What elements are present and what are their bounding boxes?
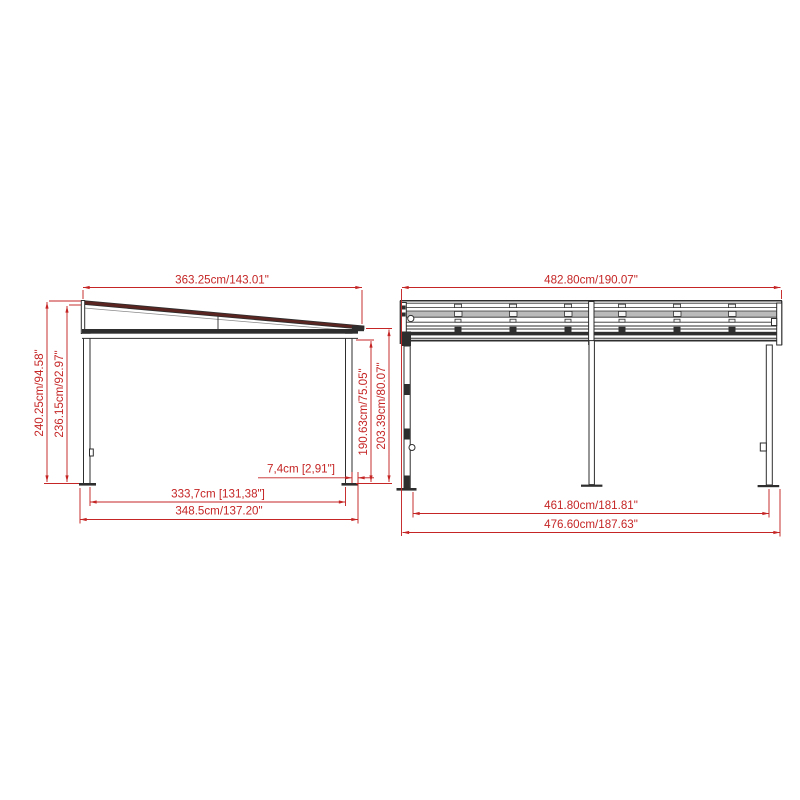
carport-technical-drawing: 363.25cm/143.01" 240.25cm/94.58" 236.15c… — [0, 0, 800, 800]
dim-label-depth-overall: 348.5cm/137.20" — [175, 505, 262, 518]
sloped-roof-panel — [82, 301, 364, 330]
dim-side-post-height-low: 190.63cm/75.05" — [356, 340, 374, 482]
front-roof — [400, 301, 782, 345]
roof-middle-divider — [589, 302, 594, 345]
side-left-base-plate — [79, 483, 96, 486]
side-structure — [79, 301, 364, 486]
dim-label-height-low-overall: 203.39cm/80.07" — [375, 362, 388, 449]
side-elevation-view: 363.25cm/143.01" 240.25cm/94.58" 236.15c… — [33, 274, 392, 524]
roof-left-edge-profile — [81, 301, 84, 334]
dim-label-post-spacing: 333,7cm [131,38"] — [171, 488, 265, 501]
rafter-clip-row-top — [455, 304, 736, 307]
left-corner-bracket — [402, 332, 412, 347]
side-gutter-end — [352, 326, 364, 331]
dim-label-roof-length: 363.25cm/143.01" — [175, 274, 269, 287]
dim-label-front-post-spacing: 461.80cm/181.81" — [544, 499, 638, 512]
front-right-base-plate — [758, 485, 780, 487]
front-right-post — [766, 345, 772, 485]
dim-label-post-height-low: 190.63cm/75.05" — [357, 368, 370, 455]
left-edge-bolt-hole — [408, 315, 414, 321]
right-edge-profile — [777, 303, 782, 345]
dim-label-overhang: 7,4cm [2,91"] — [267, 463, 335, 476]
front-left-base-plate — [397, 488, 417, 491]
front-left-post-mark — [404, 384, 410, 395]
side-post-clip — [90, 449, 94, 456]
front-left-post-mark — [404, 476, 410, 488]
dim-side-overhang: 7,4cm [2,91"] — [258, 463, 374, 484]
front-middle-base-plate — [581, 485, 602, 487]
dim-front-roof-width: 482.80cm/190.07" — [402, 274, 782, 300]
side-fascia-band — [82, 334, 358, 338]
dim-label-front-width-overall: 476.60cm/187.63" — [544, 518, 638, 531]
front-posts — [397, 341, 780, 491]
left-edge-mark — [402, 306, 406, 310]
front-left-post-mark — [404, 429, 410, 440]
dim-label-height-high-overall: 240.25cm/94.58" — [33, 349, 46, 436]
side-right-post — [346, 334, 353, 484]
front-right-post-clip — [760, 443, 766, 451]
side-roof-beam — [82, 329, 358, 334]
right-edge-tab — [772, 319, 777, 326]
left-edge-mark — [402, 313, 406, 317]
front-elevation-view: 482.80cm/190.07" 461.80cm/181.81" 476.60… — [397, 274, 783, 537]
dim-side-height-high-frame: 236.15cm/92.97" — [53, 305, 81, 482]
front-left-post — [404, 346, 410, 488]
dim-label-height-high-frame: 236.15cm/92.97" — [53, 350, 66, 437]
dim-front-width-overall: 476.60cm/187.63" — [403, 489, 781, 537]
rafter-clip-row-lower — [455, 319, 735, 322]
dim-label-front-roof-width: 482.80cm/190.07" — [544, 274, 638, 287]
rafter-clip-row-bottom — [455, 327, 736, 333]
roof-panel-underside-line — [84, 308, 350, 331]
side-right-base-plate — [342, 483, 359, 486]
side-left-post — [84, 334, 91, 484]
front-middle-post — [589, 341, 594, 485]
drawing-canvas: 363.25cm/143.01" 240.25cm/94.58" 236.15c… — [0, 0, 800, 800]
front-left-post-bolt-hole — [409, 445, 415, 451]
dim-front-post-spacing: 461.80cm/181.81" — [413, 489, 769, 518]
dim-side-post-spacing: 333,7cm [131,38"] — [90, 487, 346, 506]
